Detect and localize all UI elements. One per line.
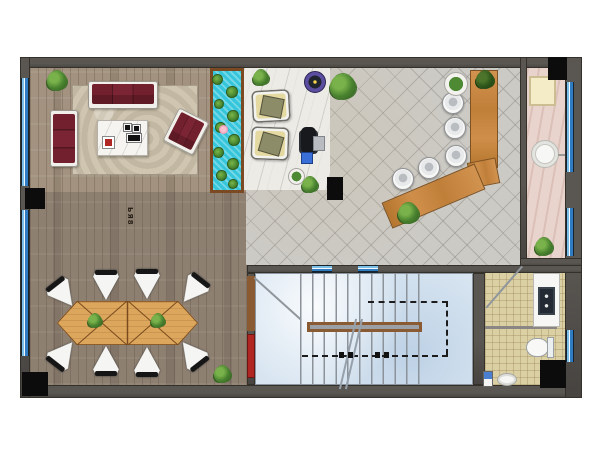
window-left: [21, 78, 29, 186]
structural-column: [22, 372, 48, 396]
lily-pad: [216, 170, 227, 181]
lily-pad: [227, 158, 239, 170]
toilet-tank: [547, 337, 554, 358]
plant: [151, 314, 165, 328]
conference-chair: [133, 269, 161, 299]
stair-direction-arrow: [339, 352, 353, 358]
plant: [47, 71, 67, 91]
beige-armchair: [250, 126, 289, 160]
side-table: [313, 136, 325, 151]
plant: [88, 314, 102, 328]
plant: [214, 366, 231, 383]
blue-crate: [301, 152, 313, 164]
chaise-lounge: [50, 110, 78, 167]
lotus-flower: [219, 125, 228, 134]
small-sink: [497, 373, 517, 386]
corridor-cabinet: [529, 76, 556, 106]
lily-pad: [228, 179, 238, 189]
lily-pad: [213, 147, 224, 158]
wall-stair-bath: [473, 273, 485, 385]
structural-column: [540, 360, 566, 388]
wall-bottom: [20, 385, 582, 398]
plant: [444, 72, 468, 96]
table-decor-tray: [127, 134, 141, 142]
conference-table-pattern: [57, 301, 198, 345]
lily-pad: [228, 134, 240, 146]
stair-glass-panel: [312, 265, 332, 273]
lily-pad: [227, 110, 239, 122]
reception-stool: [392, 168, 414, 190]
reception-stool: [445, 145, 467, 167]
lily-pad: [226, 86, 238, 98]
wall-corridor-divider: [520, 57, 527, 265]
reception-stool: [418, 157, 440, 179]
plant: [302, 177, 318, 193]
table-decor-candle: [103, 137, 114, 148]
table-decor-box: [124, 124, 131, 131]
structural-column: [327, 177, 343, 200]
sofa: [88, 81, 158, 109]
sofa-cushions: [92, 84, 154, 104]
floor-watermark: ЬЯ8: [111, 207, 133, 223]
floor-plan-canvas: ЬЯ8: [0, 0, 600, 450]
bathroom-cabinet: [483, 371, 493, 387]
window-left: [21, 210, 29, 356]
window-right: [566, 208, 574, 256]
reception-stool: [444, 117, 466, 139]
plant: [476, 71, 494, 89]
structural-column: [548, 57, 567, 80]
stair-direction-arrow: [375, 352, 389, 358]
plant: [330, 74, 356, 100]
wall-stair-top: [247, 265, 582, 273]
decor-bowl: [304, 71, 326, 93]
round-basin: [531, 140, 559, 168]
window-right: [566, 330, 574, 362]
lily-pad: [214, 99, 224, 109]
structural-column: [25, 188, 45, 209]
stair-door-leaf: [247, 276, 255, 331]
plant: [535, 238, 553, 256]
stair-path-dashed: [368, 301, 448, 355]
floor-plan: ЬЯ8: [0, 0, 600, 450]
lily-pad: [212, 74, 223, 85]
toilet: [526, 338, 549, 357]
chaise-cushions: [53, 114, 75, 163]
plant: [253, 70, 269, 86]
conference-chair: [92, 346, 120, 376]
plant: [398, 203, 419, 224]
conference-chair: [92, 270, 120, 300]
table-decor-box: [133, 125, 140, 132]
conference-table: [57, 301, 198, 345]
window-right: [566, 82, 574, 172]
beige-armchair: [251, 89, 291, 123]
wall-top: [20, 57, 582, 68]
stair-glass-panel: [358, 265, 378, 273]
wall-red-panel: [247, 334, 255, 378]
conference-chair: [133, 347, 161, 377]
vanity-sink: [538, 287, 555, 315]
